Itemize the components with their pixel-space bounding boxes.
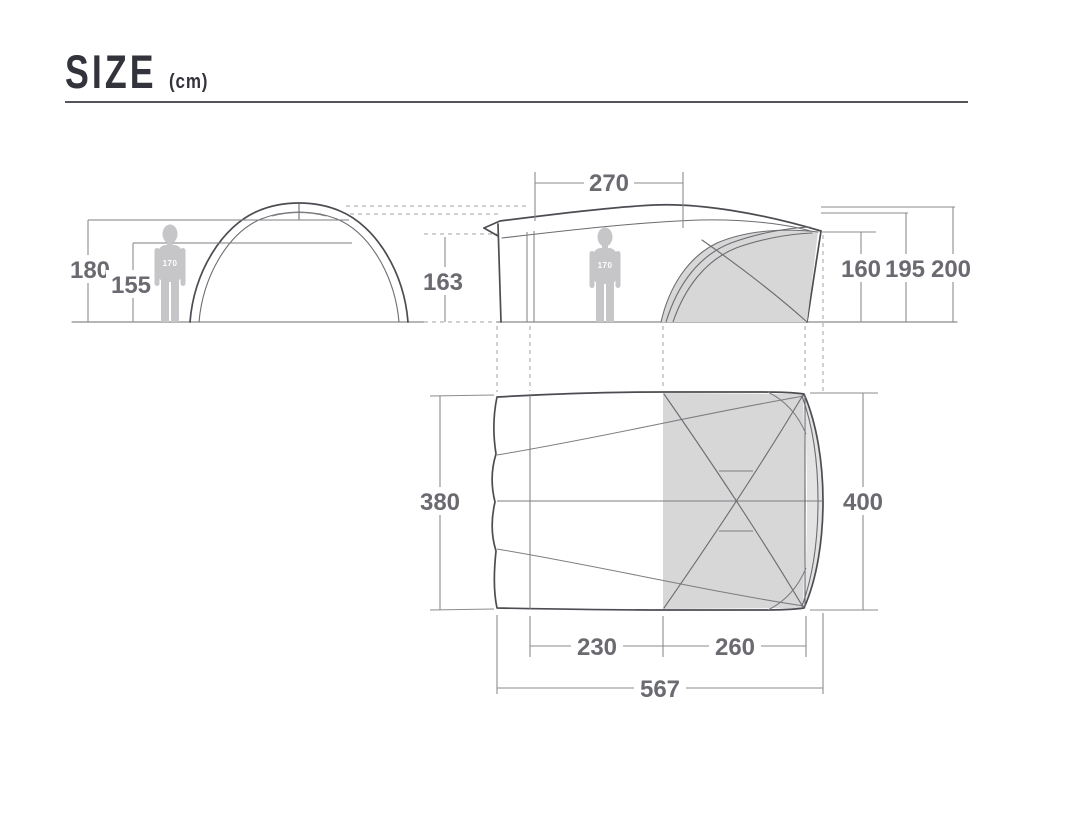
dim-tick-380-top <box>430 395 494 396</box>
dim-label-567: 567 <box>640 676 680 703</box>
dim-side-heights-right: 160 195 200 <box>821 207 978 322</box>
dim-side-front-wall-height: 163 <box>418 237 470 322</box>
person-side-height-label: 170 <box>598 261 613 270</box>
side-inner-tent-fill <box>661 230 818 322</box>
dim-label-180: 180 <box>70 257 110 284</box>
person-front-arm-right <box>181 248 186 286</box>
front-dome-outer <box>190 203 408 322</box>
dim-label-260: 260 <box>715 634 755 661</box>
person-front-arm-left <box>155 248 160 286</box>
side-view: 170 270 163 160 <box>418 169 978 322</box>
person-front: 170 <box>155 225 186 323</box>
person-side-arm-left <box>590 251 595 288</box>
person-side-arm-right <box>616 251 621 288</box>
floor-plan: 380 400 230 260 <box>414 392 889 703</box>
person-front-height-label: 170 <box>163 259 178 268</box>
dim-plan-canopy-width: 380 <box>414 395 494 610</box>
dim-label-163: 163 <box>423 269 463 296</box>
person-side: 170 <box>590 228 621 323</box>
dim-label-200: 200 <box>931 256 971 283</box>
dim-front-inner-height: 155 <box>106 243 158 322</box>
tent-dimension-drawing: 180 155 170 <box>0 0 1080 819</box>
side-eave <box>484 228 498 236</box>
dim-label-270: 270 <box>589 170 629 197</box>
person-front-leg-right <box>171 278 179 322</box>
dim-plan-depths: 230 260 567 <box>497 613 823 703</box>
dim-side-canopy-width: 270 <box>535 169 683 228</box>
person-front-leg-left <box>161 278 169 322</box>
side-front-wall <box>498 224 501 322</box>
dim-label-380: 380 <box>420 489 460 516</box>
dim-label-400: 400 <box>843 489 883 516</box>
person-side-leg-right <box>606 280 614 322</box>
dim-label-155: 155 <box>111 272 151 299</box>
person-side-leg-left <box>596 280 604 322</box>
size-diagram-page: SIZE(cm) <box>0 0 1080 819</box>
dim-label-160: 160 <box>841 256 881 283</box>
front-dome-inner <box>199 212 399 322</box>
dim-label-230: 230 <box>577 634 617 661</box>
front-view: 180 155 170 <box>64 203 408 322</box>
dim-label-195: 195 <box>885 256 925 283</box>
